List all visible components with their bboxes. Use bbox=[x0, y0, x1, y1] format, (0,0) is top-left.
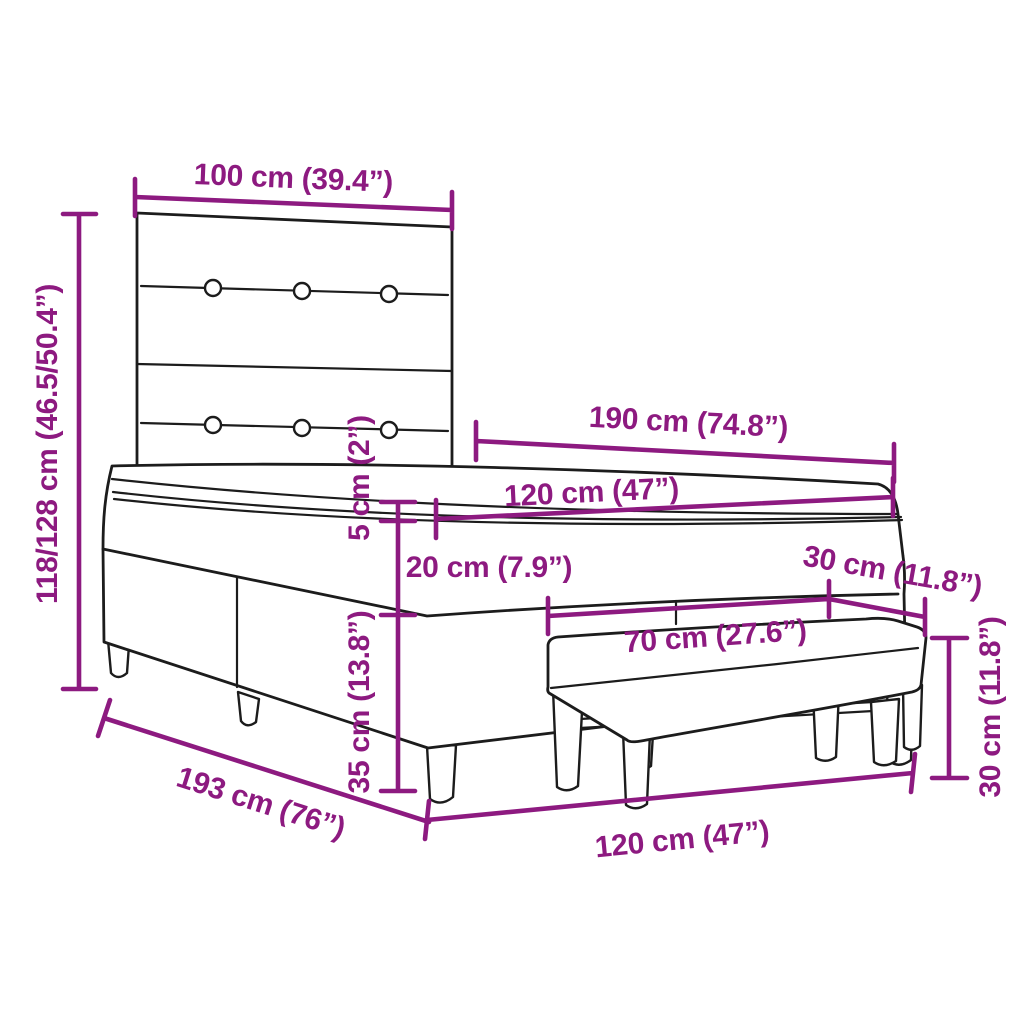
dimension-line bbox=[932, 638, 967, 778]
dimension-label-mattress-length: 190 cm (74.8”) bbox=[588, 401, 789, 444]
product-dimension-diagram: 100 cm (39.4”) 118/128 cm (46.5/50.4”) 1… bbox=[0, 0, 1024, 1024]
dimension-label-bed-length: 193 cm (76”) bbox=[173, 761, 350, 846]
diagram-canvas: 100 cm (39.4”) 118/128 cm (46.5/50.4”) 1… bbox=[0, 0, 1024, 1024]
bench-leg-back-right bbox=[903, 685, 922, 750]
headboard-button bbox=[294, 283, 310, 299]
dimension-label-mattress-thickness: 20 cm (7.9”) bbox=[406, 551, 572, 584]
dimension-bed-width: 120 cm (47”) bbox=[425, 754, 915, 864]
headboard-outline bbox=[137, 213, 452, 478]
dimension-label-total-height: 118/128 cm (46.5/50.4”) bbox=[31, 284, 64, 604]
dimension-label-headboard-width: 100 cm (39.4”) bbox=[193, 158, 393, 199]
dimension-label-bed-width: 120 cm (47”) bbox=[593, 815, 770, 865]
dimension-label-base-height: 35 cm (13.8”) bbox=[343, 611, 376, 794]
dimension-label-topper-thickness: 5 cm (2”) bbox=[343, 415, 376, 541]
headboard-button bbox=[381, 286, 397, 302]
bench-leg-front-right bbox=[871, 699, 899, 765]
headboard bbox=[137, 213, 452, 478]
headboard-button bbox=[294, 420, 310, 436]
dimension-total-height: 118/128 cm (46.5/50.4”) bbox=[31, 214, 96, 689]
headboard-button bbox=[205, 280, 221, 296]
dimension-line bbox=[63, 214, 96, 689]
headboard-button bbox=[381, 422, 397, 438]
dimension-label-bench-height: 30 cm (11.8”) bbox=[974, 616, 1007, 797]
headboard-button bbox=[205, 417, 221, 433]
bed-leg-side-middle bbox=[238, 692, 259, 725]
dimension-bench-height: 30 cm (11.8”) bbox=[932, 616, 1007, 797]
bed-leg-foot-left bbox=[427, 745, 456, 803]
